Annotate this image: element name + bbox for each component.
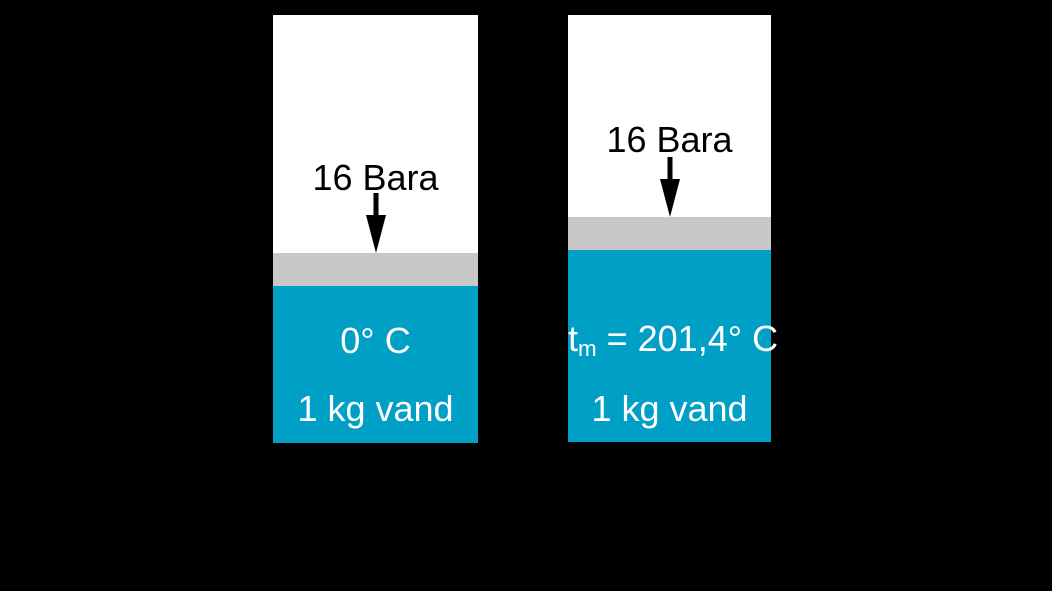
diagram-canvas: 16 Bara 0° C 1 kg vand 16 Bara tm = 201,…	[0, 0, 1052, 591]
down-arrow-icon	[364, 193, 388, 253]
mass-label: 1 kg vand	[568, 391, 771, 427]
down-arrow-icon	[658, 157, 682, 217]
temperature-label: 0° C	[273, 323, 478, 359]
cylinder-heated-water: 16 Bara tm = 201,4° C 1 kg vand	[568, 15, 771, 442]
piston-band	[568, 217, 771, 250]
cylinder-cold-water: 16 Bara 0° C 1 kg vand	[273, 15, 478, 443]
temperature-subscript: m	[578, 336, 597, 361]
pressure-label: 16 Bara	[273, 160, 478, 196]
temperature-value: = 201,4° C	[597, 318, 779, 359]
pressure-label: 16 Bara	[568, 122, 771, 158]
mass-label: 1 kg vand	[273, 391, 478, 427]
temperature-symbol: t	[568, 318, 578, 359]
piston-band	[273, 253, 478, 286]
temperature-label: tm = 201,4° C	[568, 321, 771, 357]
